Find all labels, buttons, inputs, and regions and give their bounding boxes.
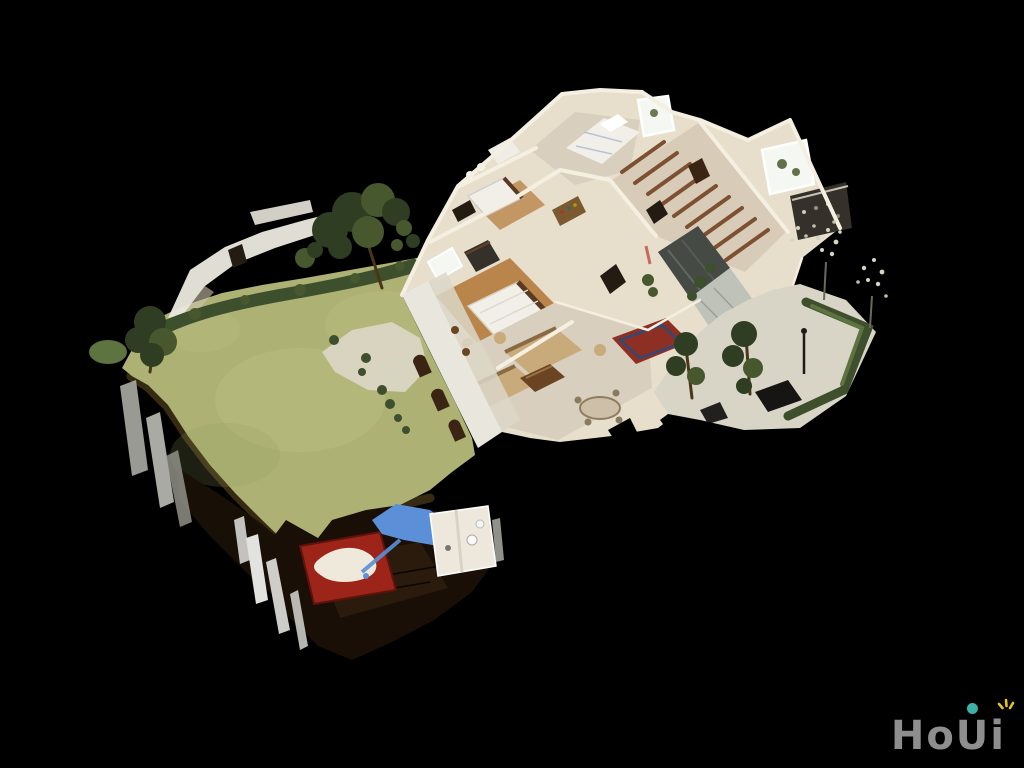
armchair (494, 332, 506, 344)
houi-logo: H o U i (891, 716, 1006, 756)
logo-letter-i: i (990, 716, 1006, 756)
corner-plant (396, 220, 412, 236)
dollhouse-3d-view[interactable] (0, 0, 1024, 768)
green-garment (642, 274, 654, 286)
logo-sparkle-icon (996, 698, 1016, 716)
logo-letter-i-glyph: i (990, 713, 1006, 759)
viewer-stage: H o U i (0, 0, 1024, 768)
dining-table (580, 397, 620, 419)
logo-letter-u-glyph: U (956, 713, 990, 759)
left-bush (89, 340, 127, 364)
patio-chair (451, 326, 459, 334)
logo-dot-icon (967, 703, 978, 714)
toilet (467, 535, 477, 545)
logo-letter-u: U (956, 716, 990, 756)
red-carpet (300, 532, 396, 604)
armchair-2 (594, 344, 606, 356)
sink (476, 520, 484, 528)
wing-window (762, 140, 814, 194)
logo-letter-h: H (891, 716, 926, 756)
logo-letter-o: o (926, 716, 955, 756)
